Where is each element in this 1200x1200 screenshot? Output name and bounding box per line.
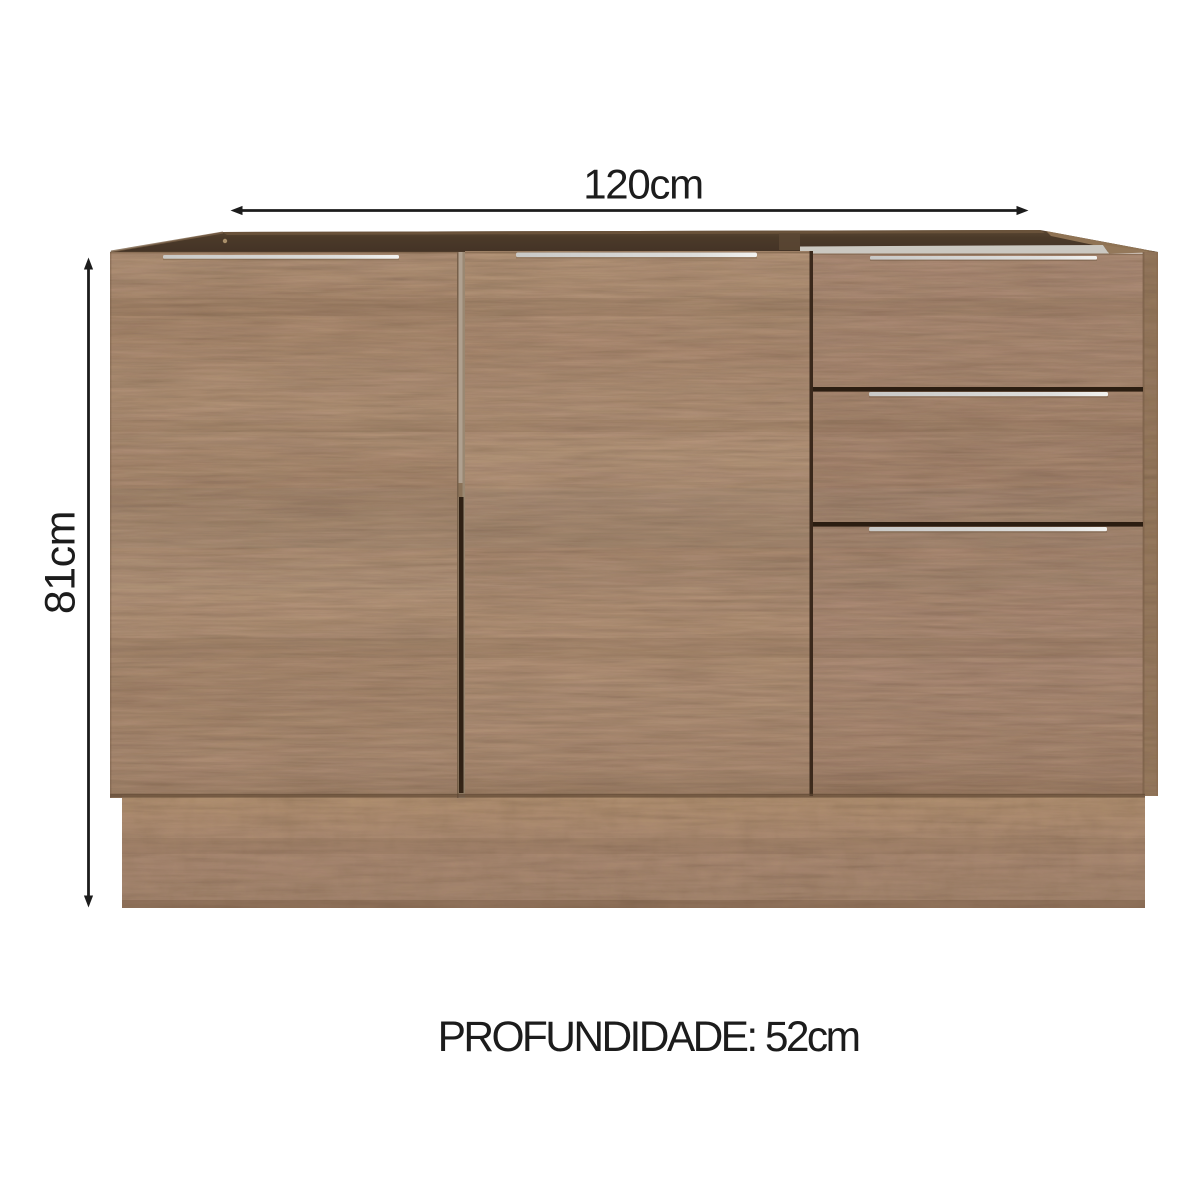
svg-text:120cm: 120cm: [583, 161, 703, 208]
svg-text:81cm: 81cm: [36, 511, 84, 614]
svg-text:PROFUNDIDADE: 52cm: PROFUNDIDADE: 52cm: [438, 1014, 859, 1061]
